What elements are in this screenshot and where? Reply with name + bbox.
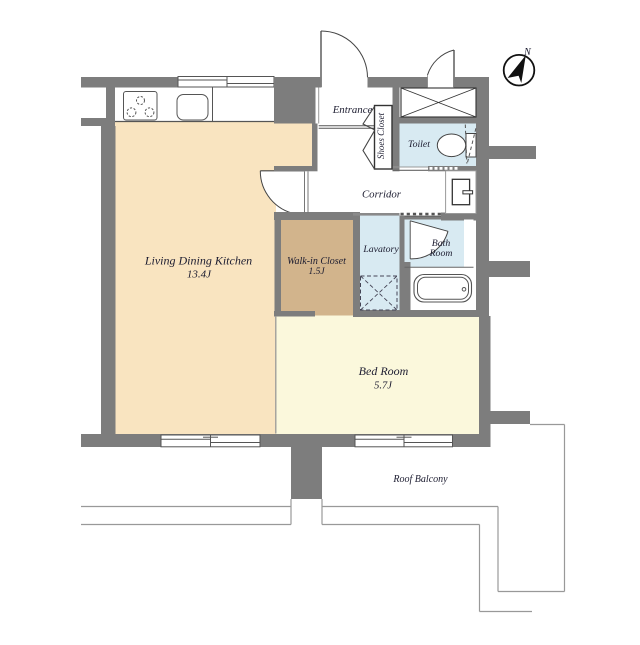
svg-text:5.7J: 5.7J [374,381,393,392]
svg-text:Entrance: Entrance [332,104,373,116]
svg-text:Living Dining Kitchen: Living Dining Kitchen [144,254,252,268]
svg-text:Shoes Closet: Shoes Closet [376,112,386,159]
svg-text:Lavatory: Lavatory [362,244,399,255]
svg-text:Corridor: Corridor [362,189,402,201]
svg-text:13.4J: 13.4J [187,269,212,281]
svg-text:Toilet: Toilet [408,139,430,150]
svg-text:Bed Room: Bed Room [359,364,409,378]
svg-text:Roof Balcony: Roof Balcony [392,474,448,485]
svg-text:Bath: Bath [432,238,451,249]
svg-text:Room: Room [429,248,453,259]
svg-text:Walk-in Closet: Walk-in Closet [287,256,346,267]
svg-text:1.5J: 1.5J [308,267,325,277]
svg-text:N: N [523,47,532,58]
